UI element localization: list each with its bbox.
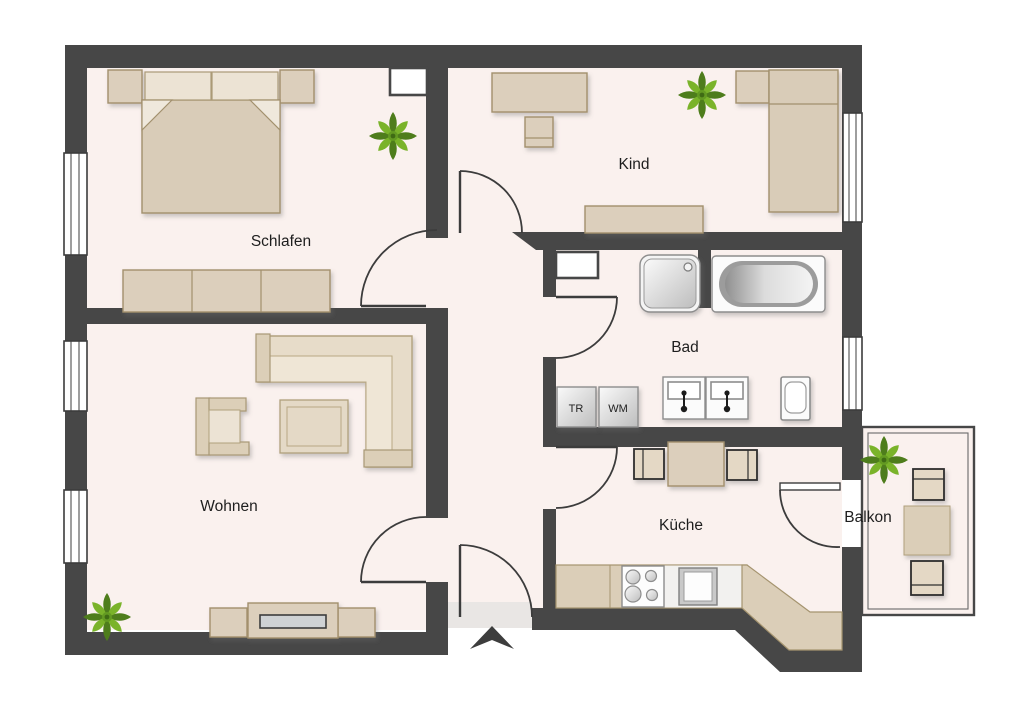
room-label-kind: Kind: [618, 156, 649, 173]
nightstand: [108, 70, 142, 103]
toilet: [781, 377, 810, 420]
sink-vanity: [663, 377, 748, 419]
window-bath: [843, 337, 862, 410]
room-label-wohnen: Wohnen: [200, 498, 257, 515]
shaft-niche-hall: [556, 252, 598, 278]
wall-living-right-lower: [426, 582, 448, 655]
wall-bath-left-lower: [543, 357, 556, 427]
wall-kidsroom-bottom: [512, 232, 862, 250]
stove: [622, 566, 664, 607]
window-bedroom: [64, 153, 87, 255]
kitchen-chair: [727, 450, 757, 480]
washing-machine: WM: [599, 387, 638, 427]
double-bed: [142, 72, 280, 213]
wall-bedroom-right: [426, 68, 448, 238]
dryer-unit: TR: [557, 387, 596, 427]
wall-right-upper: [842, 45, 862, 480]
balcony-chair: [913, 469, 944, 500]
room-label-bad: Bad: [671, 339, 699, 356]
dryer-label: TR: [569, 403, 584, 415]
room-label-balkon: Balkon: [844, 509, 891, 526]
coffee-table: [280, 400, 348, 453]
tv-sideboard: [210, 603, 375, 638]
shower: [640, 255, 700, 312]
floorplan-page: TR WM: [0, 0, 1024, 724]
kitchen-chair: [634, 449, 664, 479]
desk-chair: [525, 117, 553, 147]
single-bed: [769, 70, 838, 212]
window-living-lower: [64, 490, 87, 563]
wall-kitchen-left: [543, 509, 556, 608]
sideboard: [585, 206, 703, 233]
balcony-table: [904, 506, 950, 555]
window-living-upper: [64, 341, 87, 411]
kitchen-sink: [679, 568, 717, 605]
kitchen-table: [668, 442, 724, 486]
desk: [492, 73, 587, 112]
room-label-kueche: Küche: [659, 517, 703, 534]
room-label-schlafen: Schlafen: [251, 233, 311, 250]
window-kidsroom: [843, 113, 862, 222]
wardrobe: [123, 270, 330, 312]
nightstand: [280, 70, 314, 103]
balcony-chair: [911, 561, 943, 595]
washer-label: WM: [608, 403, 628, 415]
wall-top: [65, 45, 862, 68]
bathtub: [712, 256, 825, 312]
shaft-niche-top: [390, 68, 427, 95]
floorplan-canvas: TR WM: [0, 0, 1024, 724]
nightstand: [736, 71, 769, 103]
wall-living-right-upper: [426, 324, 448, 518]
tv-screen: [260, 615, 326, 628]
wall-bath-left-upper: [543, 250, 556, 297]
